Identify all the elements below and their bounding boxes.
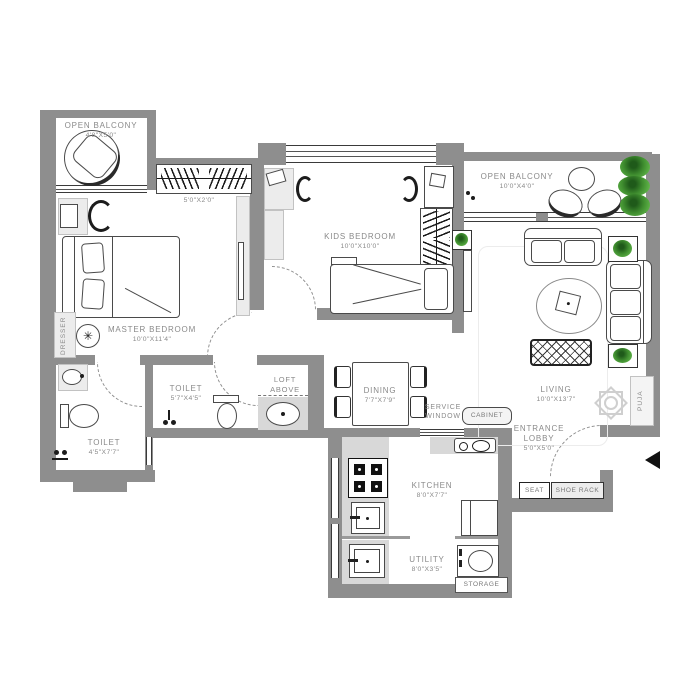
shower-bar [52, 458, 68, 460]
balcony-left-label: OPEN BALCONY 4'8"X5'0" [65, 121, 138, 141]
tap-icon [281, 412, 285, 416]
puja-label: PUJA [637, 382, 644, 420]
kitchen-utility-divider [455, 536, 498, 539]
master-bed [62, 236, 180, 318]
kids-name: KIDS BEDROOM [324, 232, 396, 242]
loft-line1: LOFT [270, 375, 300, 385]
plant-icon [455, 233, 468, 246]
plant-icon [618, 176, 650, 196]
dining-chair [410, 366, 427, 388]
master-tv [238, 242, 244, 300]
sofa-back-line [525, 238, 601, 239]
dining-dim: 7'7"X7'9" [364, 396, 397, 406]
wc-bowl [217, 403, 237, 429]
wall [600, 425, 660, 437]
balcony-right-name: OPEN BALCONY [481, 172, 554, 182]
dining-name: DINING [364, 386, 397, 396]
sofa-cushion [610, 316, 641, 341]
balcony-right-dim: 10'0"X4'0" [481, 182, 554, 192]
master-name: MASTER BEDROOM [108, 325, 196, 335]
wall [52, 110, 156, 118]
balcony-table [568, 167, 595, 191]
tap-icon [350, 516, 360, 519]
rangoli-star-icon [592, 386, 630, 420]
wall-lamp-icon [400, 176, 418, 202]
hob [348, 458, 388, 498]
pillow [81, 242, 105, 273]
fridge-door-line [470, 501, 471, 535]
shower-dot [163, 420, 168, 425]
window-line [420, 432, 464, 433]
kids-bedroom-label: KIDS BEDROOM 10'0"X10'0" [324, 232, 396, 252]
utility-label: UTILITY 8'0"X3'5" [409, 555, 444, 575]
kids-side-lamp [429, 173, 446, 188]
shower-icon [162, 410, 178, 428]
washer-drum [468, 550, 493, 572]
service-window-label: SERVICE WINDOW [425, 403, 461, 421]
kitchen-dim: 8'0"X7'7" [412, 491, 453, 501]
loft-dashed-line [258, 395, 308, 396]
shower-bar [168, 410, 170, 420]
floor-plan: ✳ DRESSER [0, 0, 700, 700]
service-line2: WINDOW [425, 412, 461, 421]
burner-icon [354, 481, 365, 492]
wall [498, 428, 512, 598]
wc-tank [213, 395, 239, 403]
sink-bowl [459, 442, 468, 451]
washing-machine [457, 545, 499, 577]
toilet-door-panel [146, 437, 152, 465]
burner-dot [375, 485, 378, 488]
wardrobe-dim: 5'0"X2'0" [184, 196, 215, 206]
toilet-master-name: TOILET [88, 438, 121, 448]
sofa-cushion [531, 240, 562, 263]
shower-dot [171, 420, 176, 425]
master-wall-lamp-icon [88, 200, 114, 232]
carpet [530, 339, 592, 366]
plant-icon [620, 194, 650, 216]
wardrobe-rail-line [436, 209, 437, 269]
loft-above-label: LOFT ABOVE [270, 375, 300, 394]
balcony-right-label: OPEN BALCONY 10'0"X4'0" [481, 172, 554, 192]
master-side-lamp [60, 204, 78, 228]
sink-bowl [472, 440, 490, 452]
tap-icon [80, 374, 84, 378]
sofa-back-line [643, 261, 644, 343]
master-dim: 10'0"X11'4" [108, 335, 196, 345]
star-circle [604, 396, 618, 410]
shower-icon [52, 448, 70, 464]
kitchen-window [331, 524, 339, 578]
framed-plant [608, 344, 638, 368]
wall [73, 480, 127, 492]
kitchen-sink-hob-unit [454, 438, 496, 453]
dining-chair [334, 396, 351, 418]
storage-box: STORAGE [455, 577, 508, 593]
kids-wardrobe [420, 208, 453, 270]
wall-lamp-icon [296, 176, 314, 202]
door-handle-dot [466, 191, 470, 195]
burner-icon [371, 464, 382, 475]
utility-dim: 8'0"X3'5" [409, 565, 444, 575]
living-tv [463, 250, 472, 312]
living-dim: 10'0"X13'7" [536, 395, 575, 405]
burner-dot [375, 468, 378, 471]
kitchen-utility-divider [342, 536, 410, 539]
lobby-line2: LOBBY [514, 434, 564, 444]
framed-plant [452, 230, 472, 250]
entry-arrow-icon [645, 451, 660, 469]
wall [308, 357, 324, 432]
dining-chair [334, 366, 351, 388]
entrance-lobby-label: ENTRANCE LOBBY 5'0"X5'0" [514, 424, 564, 454]
tap-icon [348, 559, 358, 562]
sofa-two-seat [524, 228, 602, 266]
kids-desk-return [264, 210, 284, 260]
kids-dim: 10'0"X10'0" [324, 242, 396, 252]
living-name: LIVING [536, 385, 575, 395]
wall [498, 498, 613, 512]
pillow [81, 278, 105, 309]
wc-tank [60, 404, 69, 428]
tap-dot [366, 560, 369, 563]
balcony-left-window [56, 185, 147, 193]
wall [145, 362, 153, 428]
wall [147, 110, 156, 190]
toilet-common-name: TOILET [170, 384, 203, 394]
toilet-master-dim: 4'5"X7'7" [88, 448, 121, 458]
kitchen-label: KITCHEN 8'0"X7'7" [412, 481, 453, 501]
burner-icon [371, 481, 382, 492]
sofa-cushion [610, 264, 641, 289]
window-post [536, 213, 548, 221]
cabinet-label: CABINET [471, 412, 503, 419]
wardrobe-dim-label: 5'0"X2'0" [184, 196, 215, 206]
window-line [464, 217, 646, 218]
lobby-line1: ENTRANCE [514, 424, 564, 434]
kitchen-sink [351, 502, 385, 534]
plant-icon [613, 240, 632, 257]
wall [40, 110, 56, 482]
utility-sink [349, 544, 385, 578]
toilet-master-label: TOILET 4'5"X7'7" [88, 438, 121, 458]
window-line [56, 189, 147, 190]
toilet-common-label: TOILET 5'7"X4'5" [170, 384, 203, 404]
burner-icon [354, 464, 365, 475]
wash-basin [62, 369, 82, 385]
ceiling-fan-icon: ✳ [76, 324, 100, 348]
storage-label: STORAGE [464, 581, 500, 588]
pillow [424, 268, 448, 310]
kitchen-window [331, 458, 339, 518]
loft-line2: ABOVE [270, 385, 300, 395]
utility-name: UTILITY [409, 555, 444, 565]
living-label: LIVING 10'0"X13'7" [536, 385, 575, 405]
kitchen-name: KITCHEN [412, 481, 453, 491]
kids-bedroom-window [286, 145, 436, 163]
master-bed-headboard-line [74, 237, 75, 317]
service-line1: SERVICE [425, 403, 461, 412]
sofa-three-seat [606, 260, 652, 344]
window-line [286, 151, 436, 152]
washer-hinge [459, 560, 462, 567]
shower-dot [62, 450, 67, 455]
burner-dot [358, 468, 361, 471]
wall [258, 143, 286, 165]
fridge [461, 500, 498, 536]
master-wardrobe [156, 164, 252, 194]
toilet-common-dim: 5'7"X4'5" [170, 394, 203, 404]
master-bed-mattress-line [112, 237, 113, 317]
framed-plant [608, 236, 638, 262]
window-line [286, 156, 436, 157]
door-handle-dot [471, 196, 475, 200]
service-window-sill [420, 429, 464, 436]
lobby-dim: 5'0"X5'0" [514, 444, 564, 454]
plant-icon [620, 156, 650, 178]
shower-dot [54, 450, 59, 455]
dresser-label: DRESSER [60, 316, 67, 356]
seat-box: SEAT [519, 482, 550, 499]
balcony-left-dim: 4'8"X5'0" [65, 131, 138, 141]
seat-label: SEAT [525, 487, 544, 494]
dining-label: DINING 7'7"X7'9" [364, 386, 397, 406]
cabinet-box: CABINET [462, 407, 512, 425]
master-bedroom-label: MASTER BEDROOM 10'0"X11'4" [108, 325, 196, 345]
burner-dot [358, 485, 361, 488]
sofa-cushion [610, 290, 641, 315]
balcony-left-name: OPEN BALCONY [65, 121, 138, 131]
shoe-rack-box: SHOE RACK [551, 482, 604, 499]
sofa-cushion [564, 240, 595, 263]
washer-hinge [459, 549, 462, 556]
shoe-rack-label: SHOE RACK [556, 487, 600, 494]
tap-dot [366, 517, 369, 520]
table-dot [567, 302, 571, 306]
plant-icon [613, 348, 632, 363]
wardrobe-rail-line [157, 178, 251, 179]
wc-bowl [69, 404, 99, 428]
wall [250, 158, 264, 310]
